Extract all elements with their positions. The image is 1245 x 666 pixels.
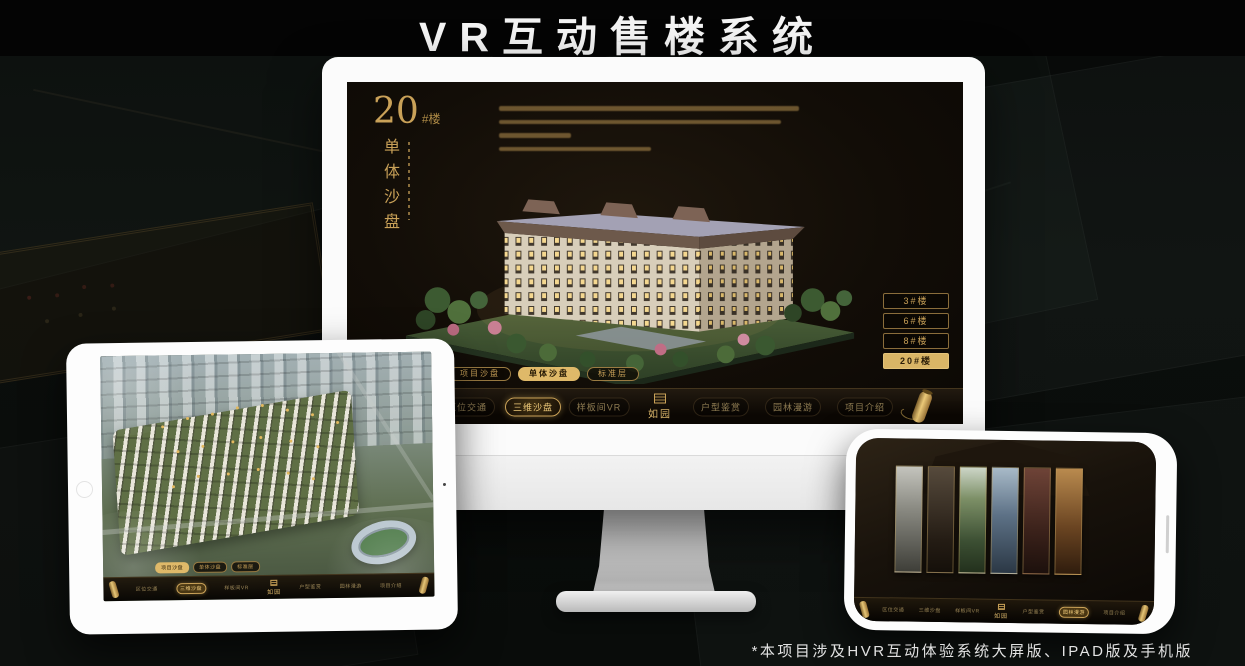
subtab-standard-floor[interactable]: 标准层	[587, 367, 639, 381]
brand-logo: 如园	[994, 603, 1008, 619]
scroll-handle-icon[interactable]	[1137, 604, 1149, 622]
stage: VR互动售楼系统 20 #楼 单体沙盘	[0, 0, 1245, 666]
building-3d-render[interactable]	[395, 152, 865, 389]
scroll-handle-icon[interactable]	[418, 576, 429, 594]
footnote-text: *本项目涉及HVR互动体验系统大屏版、IPAD版及手机版	[752, 640, 1193, 661]
gallery-panel-courtyard[interactable]	[894, 465, 922, 572]
nav-item-showroom-vr[interactable]: 样板间VR	[955, 607, 980, 614]
nav-item-project-intro[interactable]: 项目介绍	[1103, 609, 1125, 616]
brand-logo-text: 如园	[267, 586, 281, 595]
nav-item-3d-sandbox[interactable]: 三维沙盘	[505, 397, 561, 416]
ipad-main-nav: 区位交通 三维沙盘 样板间VR 如园 户型鉴赏 园林漫游 项目介绍	[103, 573, 434, 602]
page-title: VR互动售楼系统	[0, 3, 1245, 63]
nav-item-project-intro[interactable]: 项目介绍	[380, 582, 402, 589]
description-line	[499, 147, 651, 152]
nav-item-garden-tour[interactable]: 园林漫游	[765, 397, 821, 416]
nav-item-project-intro[interactable]: 项目介绍	[837, 397, 893, 416]
scroll-handle-icon[interactable]	[859, 600, 870, 618]
description-line	[499, 133, 571, 138]
seal-icon	[270, 579, 277, 585]
brand-logo-text: 如园	[994, 610, 1008, 619]
nav-item-garden-tour[interactable]: 园林漫游	[1059, 607, 1089, 618]
phone-main-nav: 区位交通 三维沙盘 样板间VR 如园 户型鉴赏 园林漫游 项目介绍	[854, 597, 1154, 625]
description-line	[499, 106, 799, 111]
nav-item-3d-sandbox[interactable]: 三维沙盘	[176, 583, 206, 594]
brand-logo: 如园	[648, 393, 672, 420]
seal-icon	[654, 393, 666, 403]
seal-icon	[998, 603, 1005, 609]
brand-logo-text: 如园	[648, 405, 672, 420]
nav-item-unit-plans[interactable]: 户型鉴赏	[693, 397, 749, 416]
nav-item-3d-sandbox[interactable]: 三维沙盘	[919, 607, 941, 614]
phone-device: 区位交通 三维沙盘 样板间VR 如园 户型鉴赏 园林漫游 项目介绍	[844, 429, 1178, 635]
ipad-app-screen: 项目沙盘 单体沙盘 标准层 区位交通 三维沙盘 样板间VR 如园 户型鉴赏 园林…	[100, 352, 434, 602]
phone-app-screen: 区位交通 三维沙盘 样板间VR 如园 户型鉴赏 园林漫游 项目介绍	[854, 438, 1157, 625]
scroll-handle-icon[interactable]	[910, 389, 933, 424]
floor-button-20[interactable]: 20#楼	[883, 353, 949, 369]
subtab-project-sandbox[interactable]: 项目沙盘	[449, 367, 511, 381]
floor-button-8[interactable]: 8#楼	[883, 333, 949, 349]
ipad-camera-icon	[443, 482, 446, 485]
subtab-project-sandbox[interactable]: 项目沙盘	[155, 562, 189, 573]
phone-side-button[interactable]	[1166, 515, 1170, 553]
ipad-sandbox-subtabs: 项目沙盘 单体沙盘 标准层	[155, 561, 260, 573]
nav-item-location[interactable]: 区位交通	[882, 606, 904, 613]
brand-logo: 如园	[267, 579, 281, 595]
gallery-panel-building[interactable]	[990, 467, 1018, 574]
scene-gallery	[894, 465, 1082, 575]
gallery-panel-garage[interactable]	[926, 466, 954, 573]
building-number-suffix: #楼	[422, 110, 441, 130]
subtab-standard-floor[interactable]: 标准层	[231, 561, 260, 572]
nav-item-location[interactable]: 区位交通	[136, 585, 158, 592]
gallery-panel-garden[interactable]	[958, 466, 986, 573]
ipad-home-button[interactable]	[76, 480, 93, 497]
nav-item-garden-tour[interactable]: 园林漫游	[340, 583, 362, 590]
sandbox-subtabs: 项目沙盘 单体沙盘 标准层	[449, 367, 639, 381]
floor-button-group: 3#楼 6#楼 8#楼 20#楼	[883, 293, 949, 369]
scroll-handle-icon[interactable]	[108, 580, 120, 598]
ipad-device: 项目沙盘 单体沙盘 标准层 区位交通 三维沙盘 样板间VR 如园 户型鉴赏 园林…	[66, 338, 458, 634]
aerial-masterplan-render[interactable]: 项目沙盘 单体沙盘 标准层 区位交通 三维沙盘 样板间VR 如园 户型鉴赏 园林…	[100, 352, 434, 602]
subtab-single-sandbox[interactable]: 单体沙盘	[193, 561, 227, 572]
description-line	[499, 120, 781, 125]
monitor-stand-neck	[593, 509, 715, 593]
nav-item-unit-plans[interactable]: 户型鉴赏	[299, 583, 321, 590]
gallery-panel-shelf[interactable]	[1054, 468, 1082, 575]
floor-button-6[interactable]: 6#楼	[883, 313, 949, 329]
monitor-stand-base	[556, 591, 756, 612]
interior-scene-render: 区位交通 三维沙盘 样板间VR 如园 户型鉴赏 园林漫游 项目介绍	[854, 438, 1157, 625]
nav-item-showroom-vr[interactable]: 样板间VR	[569, 397, 630, 416]
gallery-panel-interior[interactable]	[1022, 467, 1050, 574]
floor-button-3[interactable]: 3#楼	[883, 293, 949, 309]
building-number: 20	[373, 94, 419, 130]
nav-item-unit-plans[interactable]: 户型鉴赏	[1022, 608, 1044, 615]
nav-item-showroom-vr[interactable]: 样板间VR	[224, 584, 249, 591]
subtab-single-sandbox[interactable]: 单体沙盘	[518, 367, 580, 381]
